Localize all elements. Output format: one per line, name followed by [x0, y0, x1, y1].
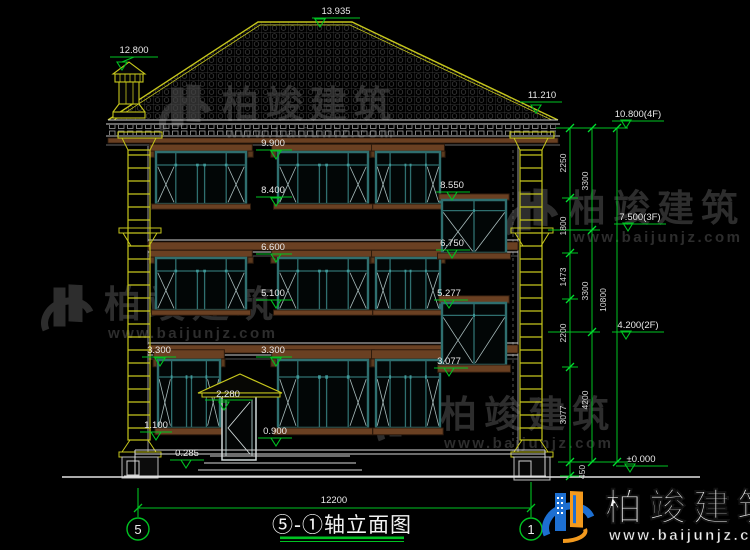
label-level-2f: 4.200(2F) — [617, 320, 658, 331]
window — [371, 350, 445, 435]
label-level-3f: 7.500(3F) — [619, 212, 660, 223]
label-ridge: 13.935 — [321, 6, 350, 17]
label-f2-win-top: 6.600 — [261, 242, 285, 253]
label-bay2-bottom: 3.077 — [437, 356, 461, 367]
drawing-title: ⑤-①轴立面图 — [272, 514, 412, 537]
label-total-width: 12200 — [321, 495, 347, 506]
window — [271, 250, 375, 315]
label-eave: 11.210 — [528, 90, 556, 101]
dim-3077: 3077 — [558, 405, 568, 424]
label-level-4f: 10.800(4F) — [615, 109, 661, 120]
dim-450: 450 — [577, 465, 587, 479]
eave-cornice — [106, 120, 560, 145]
window — [271, 144, 375, 209]
dim-1473: 1473 — [558, 267, 568, 286]
window — [371, 144, 445, 209]
dim-1800: 1800 — [558, 216, 568, 235]
label-f3-win-top: 9.900 — [261, 138, 285, 149]
window — [149, 250, 253, 315]
drawing-title-block: ⑤-①轴立面图 — [272, 514, 412, 542]
windows-floor3 — [149, 144, 445, 209]
label-f1-sill-center: 0.900 — [263, 426, 287, 437]
dim-2250: 2250 — [558, 153, 568, 172]
svg-text:www.baijunjz.com: www.baijunjz.com — [572, 229, 742, 246]
brand-logo: 柏竣建筑 www.baijunjz.com — [546, 486, 750, 544]
dim-2200: 2200 — [558, 323, 568, 342]
bay-windows — [438, 194, 511, 372]
label-f1-win-top-left: 3.300 — [147, 345, 171, 356]
window — [371, 250, 445, 315]
cad-elevation-screenshot: 柏竣建筑 www.baijunjz.com 柏竣建筑 www.baijunjz.… — [0, 0, 750, 550]
dim-3300-b: 3300 — [580, 281, 590, 300]
label-bay2-top: 5.277 — [437, 288, 461, 299]
label-chimney: 12.800 — [119, 45, 148, 56]
roof — [108, 22, 558, 120]
bay-window-3f — [438, 194, 511, 259]
label-f3-win-sill: 8.400 — [261, 185, 285, 196]
label-level-zero: ±0.000 — [627, 454, 656, 465]
windows-floor2 — [149, 250, 445, 315]
windows-floor1 — [153, 350, 445, 435]
label-f1-sill-left: 1.100 — [144, 420, 168, 431]
label-bay3-top: 8.550 — [440, 180, 464, 191]
label-terrace: 0.285 — [175, 448, 199, 459]
label-f1-win-top-center: 3.300 — [261, 345, 285, 356]
elevation-drawing: 柏竣建筑 www.baijunjz.com 柏竣建筑 www.baijunjz.… — [0, 0, 750, 550]
dim-3300-a: 3300 — [580, 171, 590, 190]
level-markers: 10.800(4F) 7.500(3F) 4.200(2F) ±0.000 — [612, 109, 668, 472]
axis-bubble-left-number: 5 — [134, 522, 141, 537]
label-f2-win-sill: 5.100 — [261, 288, 285, 299]
brand-logo-site: www.baijunjz.com — [608, 527, 750, 544]
window — [271, 350, 375, 435]
label-bay3-bottom: 6.750 — [440, 238, 464, 249]
label-door-canopy: 2.280 — [216, 389, 240, 400]
brand-logo-name: 柏竣建筑 — [605, 486, 750, 528]
axis-bubble-right-number: 1 — [527, 522, 534, 537]
window — [149, 144, 253, 209]
dim-10800: 10800 — [598, 288, 608, 312]
dim-4200: 4200 — [580, 390, 590, 409]
